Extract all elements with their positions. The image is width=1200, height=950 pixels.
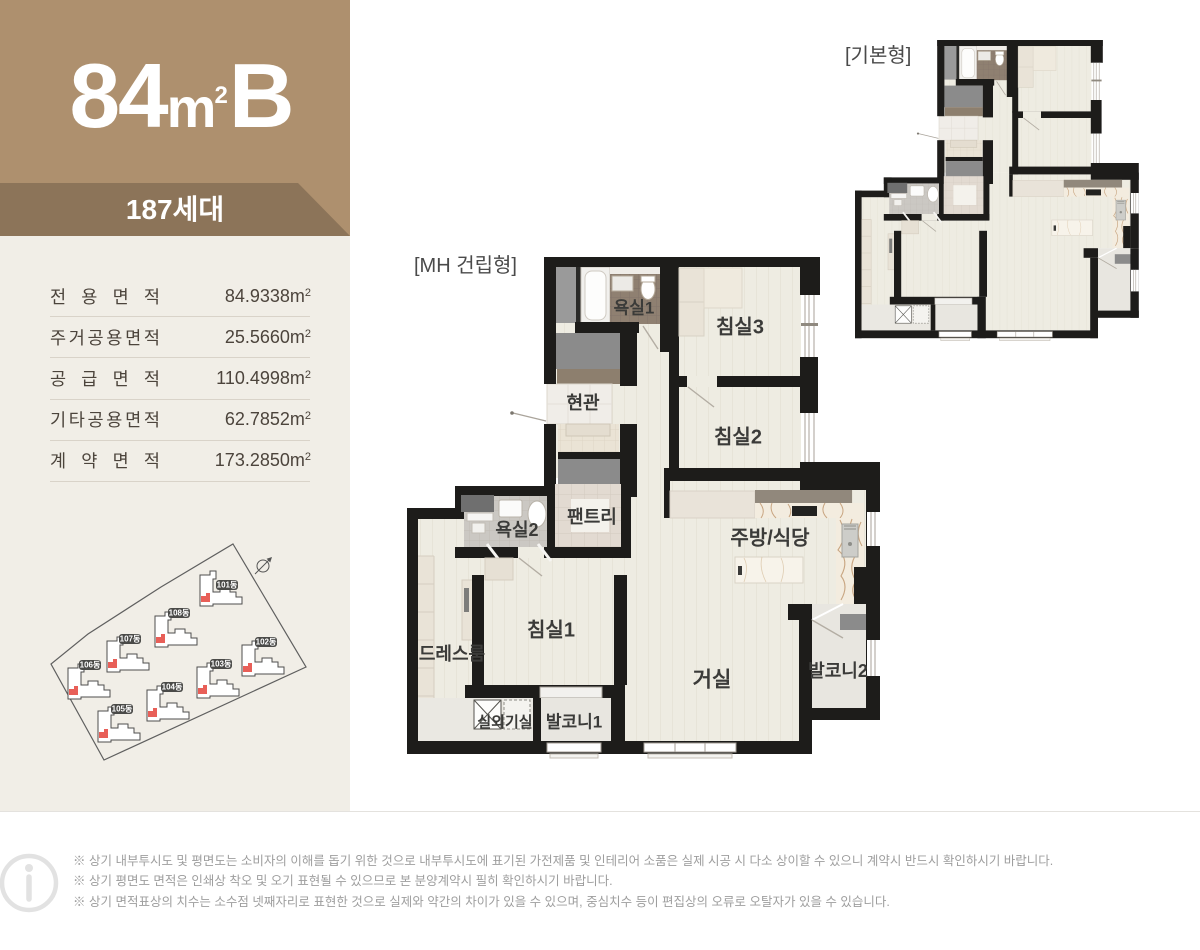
svg-text:106동: 106동 xyxy=(80,661,101,670)
svg-text:102동: 102동 xyxy=(256,638,277,647)
svg-text:103동: 103동 xyxy=(211,660,232,669)
svg-text:108동: 108동 xyxy=(169,609,190,618)
svg-text:거실: 거실 xyxy=(693,669,732,692)
svg-text:실외기실: 실외기실 xyxy=(477,713,532,731)
svg-text:욕실1: 욕실1 xyxy=(614,298,655,317)
svg-text:욕실2: 욕실2 xyxy=(495,520,538,540)
svg-text:104동: 104동 xyxy=(162,683,183,692)
svg-text:드레스룸: 드레스룸 xyxy=(419,644,485,664)
svg-text:발코니2: 발코니2 xyxy=(808,661,868,681)
svg-text:107동: 107동 xyxy=(120,635,141,644)
svg-text:101동: 101동 xyxy=(217,581,238,590)
svg-text:침실2: 침실2 xyxy=(714,425,762,448)
svg-text:침실1: 침실1 xyxy=(527,618,575,641)
svg-text:팬트리: 팬트리 xyxy=(567,507,617,527)
svg-text:침실3: 침실3 xyxy=(716,315,764,338)
svg-text:발코니1: 발코니1 xyxy=(546,712,602,731)
svg-text:현관: 현관 xyxy=(566,393,600,413)
svg-text:주방/식당: 주방/식당 xyxy=(730,526,810,549)
svg-text:105동: 105동 xyxy=(112,705,133,714)
